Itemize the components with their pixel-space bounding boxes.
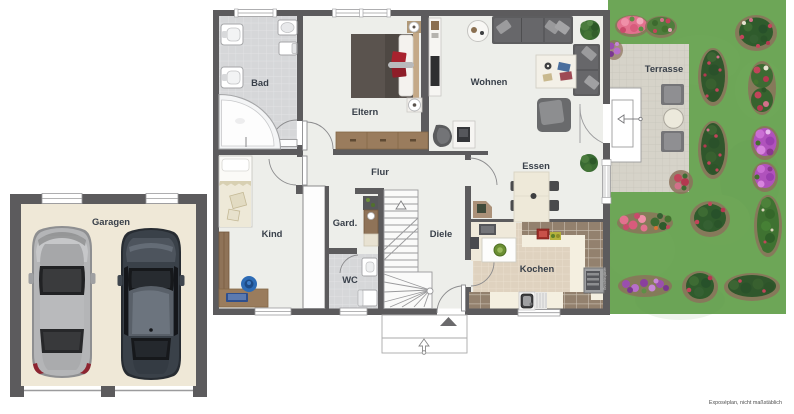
svg-text:Gard.: Gard. [333, 217, 358, 228]
svg-text:Eltern: Eltern [352, 106, 379, 117]
svg-text:Kind: Kind [262, 228, 283, 239]
svg-text:Flur: Flur [371, 166, 389, 177]
svg-text:Bad: Bad [251, 77, 269, 88]
svg-text:Wohnen: Wohnen [471, 76, 508, 87]
svg-text:WC: WC [342, 274, 358, 285]
svg-text:Exposéplan, nicht maßstäblich: Exposéplan, nicht maßstäblich [709, 400, 782, 406]
svg-text:Kochen: Kochen [520, 263, 555, 274]
svg-text:Garagen: Garagen [92, 216, 130, 227]
svg-text:Terrasse: Terrasse [645, 63, 683, 74]
svg-text:Essen: Essen [522, 160, 550, 171]
svg-text:Grundrissplaner: Grundrissplaner [603, 266, 607, 290]
svg-text:Diele: Diele [430, 228, 452, 239]
